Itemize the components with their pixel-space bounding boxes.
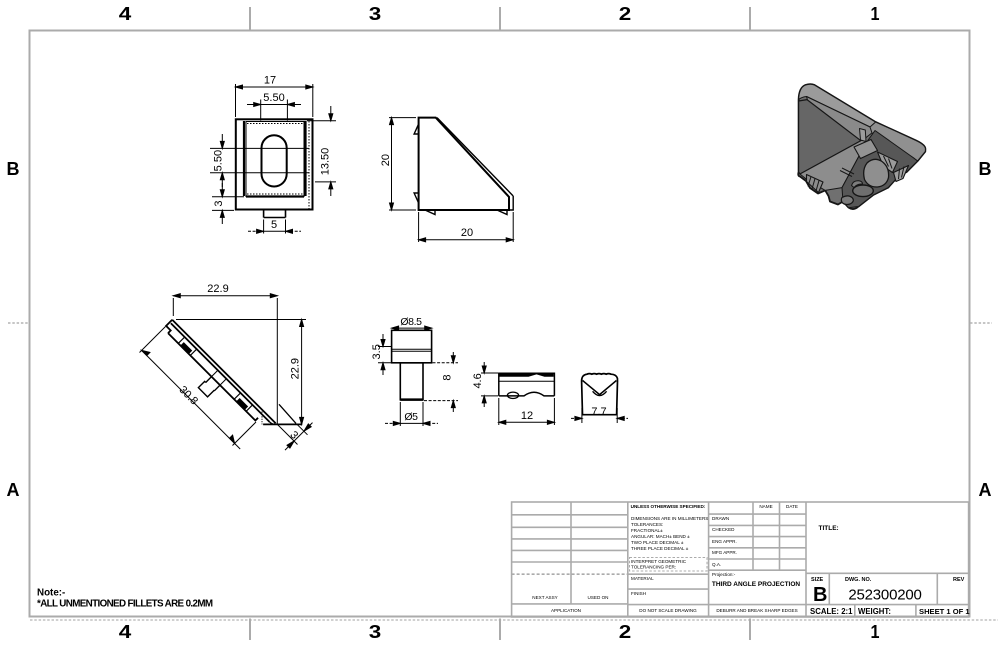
- svg-text:252300200: 252300200: [848, 587, 921, 604]
- svg-text:SCALE: 2:1: SCALE: 2:1: [810, 607, 853, 616]
- svg-text:4: 4: [119, 4, 132, 24]
- svg-text:THIRD ANGLE PROJECTION: THIRD ANGLE PROJECTION: [712, 581, 801, 588]
- svg-text:2: 2: [619, 622, 632, 642]
- svg-text:INTERPRET GEOMETRIC: INTERPRET GEOMETRIC: [631, 559, 687, 564]
- svg-text:1: 1: [871, 622, 880, 642]
- svg-text:13.50: 13.50: [320, 148, 332, 176]
- svg-text:SIZE: SIZE: [811, 577, 824, 583]
- svg-text:DWG. NO.: DWG. NO.: [845, 577, 872, 583]
- svg-text:TOLERANCING PER:: TOLERANCING PER:: [631, 565, 676, 570]
- svg-text:1: 1: [871, 4, 880, 24]
- svg-text:DO NOT SCALE DRAWING: DO NOT SCALE DRAWING: [639, 608, 697, 613]
- svg-text:ANGULAR: MACH± BEND ±: ANGULAR: MACH± BEND ±: [631, 534, 690, 539]
- svg-text:5: 5: [271, 219, 277, 231]
- svg-text:5.50: 5.50: [212, 150, 224, 171]
- svg-text:A: A: [979, 480, 992, 500]
- svg-text:4.6: 4.6: [472, 373, 484, 388]
- svg-text:A: A: [7, 480, 20, 500]
- svg-text:3: 3: [213, 201, 225, 207]
- svg-text:3: 3: [369, 622, 382, 642]
- svg-text:Ø8.5: Ø8.5: [400, 316, 422, 328]
- svg-text:Ø5: Ø5: [404, 411, 418, 423]
- svg-text:B: B: [979, 159, 992, 179]
- svg-text:SHEET 1 OF 1: SHEET 1 OF 1: [919, 607, 970, 616]
- svg-text:DEBURR AND BREAK SHARP EDGES: DEBURR AND BREAK SHARP EDGES: [716, 608, 797, 613]
- svg-text:B: B: [813, 584, 827, 606]
- svg-text:USED ON: USED ON: [588, 595, 609, 600]
- svg-text:3: 3: [369, 4, 382, 24]
- svg-text:WEIGHT:: WEIGHT:: [858, 607, 891, 616]
- svg-text:NEXT ASSY: NEXT ASSY: [532, 595, 557, 600]
- svg-text:22.9: 22.9: [207, 283, 228, 295]
- svg-text:ENG APPR.: ENG APPR.: [712, 539, 737, 544]
- svg-text:REV: REV: [953, 577, 965, 583]
- svg-text:2: 2: [619, 4, 632, 24]
- svg-text:APPLICATION: APPLICATION: [551, 608, 581, 613]
- svg-text:12: 12: [521, 410, 533, 422]
- svg-text:TITLE:: TITLE:: [819, 525, 839, 532]
- svg-text:FRACTIONAL±: FRACTIONAL±: [631, 528, 663, 533]
- svg-text:DIMENSIONS ARE IN MILLIMETERS: DIMENSIONS ARE IN MILLIMETERS: [631, 516, 708, 521]
- svg-text:17: 17: [264, 75, 276, 87]
- svg-text:20: 20: [461, 227, 473, 239]
- svg-text:TWO PLACE DECIMAL ±: TWO PLACE DECIMAL ±: [631, 540, 684, 545]
- svg-text:TOLERANCES:: TOLERANCES:: [631, 522, 663, 527]
- svg-text:THREE PLACE DECIMAL ±: THREE PLACE DECIMAL ±: [631, 546, 689, 551]
- svg-text:DATE: DATE: [786, 504, 798, 509]
- svg-text:7.7: 7.7: [591, 406, 606, 418]
- svg-text:22.9: 22.9: [290, 358, 302, 379]
- svg-text:Q.A.: Q.A.: [712, 562, 721, 567]
- svg-text:*ALL UNMENTIONED FILLETS ARE 0: *ALL UNMENTIONED FILLETS ARE 0.2MM: [37, 599, 213, 610]
- svg-text:Projection:-: Projection:-: [712, 572, 736, 577]
- svg-text:Note:-: Note:-: [37, 588, 65, 599]
- svg-text:NAME: NAME: [759, 504, 772, 509]
- svg-text:MFG APPR.: MFG APPR.: [712, 550, 737, 555]
- svg-text:MATERIAL: MATERIAL: [631, 576, 654, 581]
- svg-text:3.5: 3.5: [371, 344, 383, 359]
- svg-text:FINISH: FINISH: [631, 591, 646, 596]
- svg-text:UNLESS OTHERWISE SPECIFIED:: UNLESS OTHERWISE SPECIFIED:: [631, 504, 706, 509]
- svg-text:CHECKED: CHECKED: [712, 527, 735, 532]
- svg-text:DRAWN: DRAWN: [712, 516, 729, 521]
- svg-text:5.50: 5.50: [263, 92, 284, 104]
- svg-text:20: 20: [380, 154, 392, 166]
- svg-text:8: 8: [441, 375, 453, 381]
- svg-text:B: B: [7, 159, 20, 179]
- svg-text:4: 4: [119, 622, 132, 642]
